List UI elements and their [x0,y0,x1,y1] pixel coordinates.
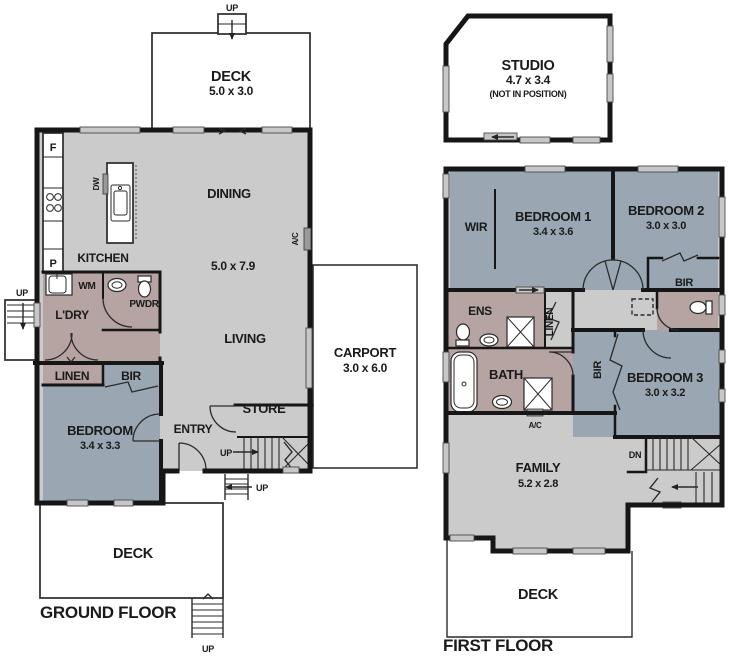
linen-ff-label: LINEN [545,308,556,337]
dn-label: DN [629,450,641,460]
bath-basin-icon [493,396,512,409]
ground-floor-plan: UP DECK 5.0 x 3.0 DECK UP CARPORT 3.0 x … [5,3,417,654]
bedroom-dims: 3.4 x 3.3 [80,440,120,452]
dishwasher-icon [103,174,108,194]
bir-bed2-label: BIR [675,277,693,289]
window [513,548,547,554]
window [607,26,613,62]
powder-label: PWDR [129,299,159,310]
window [525,166,565,172]
bedroom3-dims: 3.0 x 3.2 [645,387,685,399]
store-label: STORE [242,401,286,416]
ac-label: A/C [291,232,300,245]
dishwasher-label: DW [92,177,101,190]
kitchen-label: KITCHEN [77,251,128,265]
ac-ff-label: A/C [529,421,542,430]
wir-label: WIR [465,220,488,234]
deck-top-label: DECK [211,69,252,85]
window [114,500,133,506]
up-label: UP [16,288,28,298]
window [719,350,725,363]
laundry-label: L'DRY [55,308,89,322]
entry-label: ENTRY [174,422,213,436]
window [520,137,550,143]
window [34,303,40,327]
window [573,548,605,554]
window [607,74,613,102]
bedroom2-label: BEDROOM 2 [628,203,704,218]
ens-label: ENS [468,304,492,318]
studio-dims: 4.7 x 3.4 [506,73,551,87]
studio-note: (NOT IN POSITION) [490,89,567,99]
bathtub-icon [451,352,477,412]
ground-floor-title: GROUND FLOOR [40,603,176,622]
bedroom1-dims: 3.4 x 3.6 [533,226,573,238]
fridge-label: F [50,142,57,154]
kitchen-bench: F P [43,133,63,273]
window [283,467,299,473]
window [719,389,725,402]
deck-top: UP DECK 5.0 x 3.0 [152,3,310,130]
window [443,443,449,473]
floorplan-drawing: UP DECK 5.0 x 3.0 DECK UP CARPORT 3.0 x … [0,0,730,660]
bir-label: BIR [121,369,141,383]
wc-fixtures [690,301,712,314]
up-label: UP [202,644,214,654]
entry-exterior-stair: UP [225,474,268,500]
window [719,295,725,315]
living-label: LIVING [224,331,266,346]
window [80,127,140,133]
window [443,174,449,198]
window [638,166,678,172]
bir-bed3-label: BIR [592,361,604,379]
bath-shower-icon [524,378,552,410]
bedroom-label: BEDROOM [67,423,133,438]
studio: STUDIO 4.7 x 3.4 (NOT IN POSITION) [443,16,613,143]
deck-bottom: DECK UP [40,503,223,654]
window [173,127,204,133]
ens-basin-icon [480,334,498,346]
carport-dims: 3.0 x 6.0 [343,361,388,375]
studio-label: STUDIO [502,58,555,74]
carport-label: CARPORT [334,345,397,360]
deck-bottom-label: DECK [113,546,154,562]
living-dining-dims: 5.0 x 7.9 [211,259,256,273]
wc-toilet-icon [690,302,706,314]
window [443,352,449,382]
first-floor-title: FIRST FLOOR [443,636,553,655]
window [719,197,725,237]
ac-unit-icon [304,228,311,250]
ens-shower-icon [507,317,534,347]
ens-toilet-icon [457,324,470,340]
window [67,500,88,506]
dining-label: DINING [207,186,251,201]
family-label: FAMILY [516,460,561,475]
deck-ff-label: DECK [518,587,559,603]
family-dims: 5.2 x 2.8 [518,478,558,490]
window [450,535,474,541]
carport: CARPORT 3.0 x 6.0 [313,265,417,468]
up-label: UP [226,3,238,13]
bath-label: BATH [489,367,523,382]
up-label: UP [256,483,268,493]
deck-bottom-stair: UP [192,594,223,654]
window [306,328,312,388]
wm-label: WM [78,281,95,292]
linen-label: LINEN [55,369,90,383]
powder-basin-icon [108,279,126,292]
window [262,127,292,133]
first-floor-plan: STUDIO 4.7 x 3.4 (NOT IN POSITION) DECK [443,16,725,655]
window [443,66,449,112]
up-label: UP [220,448,232,458]
powder-toilet-icon [138,276,151,297]
bedroom2-dims: 3.0 x 3.0 [646,220,686,232]
bedroom3-label: BEDROOM 3 [627,370,703,385]
deck-top-dims: 5.0 x 3.0 [209,84,254,98]
bedroom1-label: BEDROOM 1 [515,209,591,224]
pantry-label: P [49,258,56,270]
floorplan-page: UP DECK 5.0 x 3.0 DECK UP CARPORT 3.0 x … [0,0,730,660]
window [573,137,600,143]
